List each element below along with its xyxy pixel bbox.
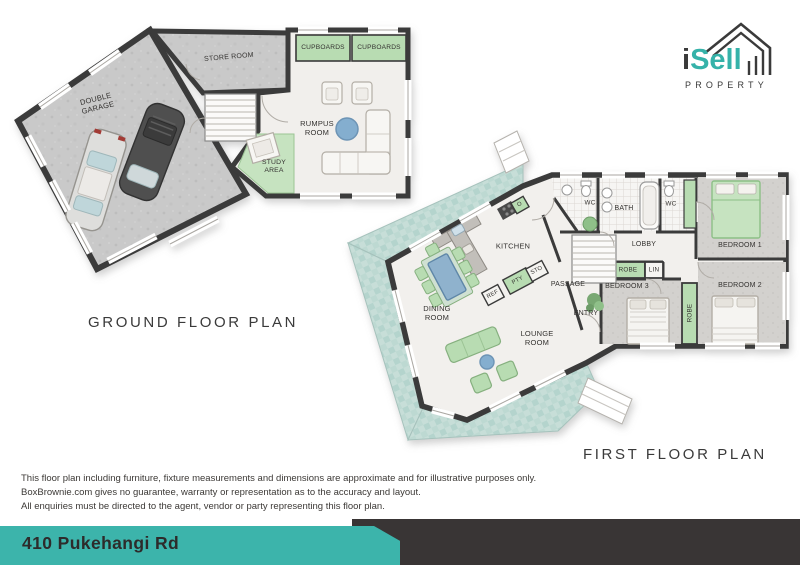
bed-bedroom1 — [712, 181, 760, 238]
flyer-page: DOUBLE GARAGE STORE ROOM CUPBOARDS CUPBO… — [0, 0, 800, 565]
ground-stairs — [205, 94, 256, 141]
label-study-area: STUDY AREA — [256, 159, 292, 175]
disclaimer-line-3: All enquiries must be directed to the ag… — [21, 500, 385, 514]
label-entry: ENTRY — [574, 310, 599, 318]
footer-dark-bar — [352, 519, 800, 565]
label-robe-lobby: ROBE — [619, 266, 638, 273]
toilet-wc-left — [581, 181, 591, 197]
label-bedroom-2: BEDROOM 2 — [718, 282, 762, 290]
label-passage: PASSAGE — [551, 281, 585, 289]
first-floor-title: FIRST FLOOR PLAN — [583, 446, 767, 463]
label-robe-bedroom: ROBE — [686, 304, 693, 323]
isell-logo-wordmark: iSell — [682, 44, 742, 77]
label-wc-left: WC — [585, 199, 596, 206]
disclaimer-line-1: This floor plan including furniture, fix… — [21, 472, 536, 486]
label-dining-room: DINING ROOM — [417, 305, 457, 323]
bed-bedroom3 — [627, 298, 669, 344]
toilet-wc-right — [664, 181, 674, 197]
bath-basin-1 — [602, 188, 612, 198]
isell-logo-subtitle: PROPERTY — [685, 80, 768, 90]
disclaimer-line-2: BoxBrownie.com gives no guarantee, warra… — [21, 486, 421, 500]
label-bath: BATH — [615, 205, 634, 213]
logo-i: i — [682, 44, 690, 76]
label-lobby: LOBBY — [632, 241, 656, 249]
property-address: 410 Pukehangi Rd — [22, 533, 179, 554]
plant-stairs — [583, 217, 597, 231]
deck-steps-top — [494, 131, 529, 173]
label-cupboards-left: CUPBOARDS — [301, 44, 345, 52]
bathtub — [640, 182, 659, 229]
label-lounge-room: LOUNGE ROOM — [515, 330, 559, 348]
label-bedroom-3: BEDROOM 3 — [605, 283, 649, 291]
label-bedroom-1: BEDROOM 1 — [718, 242, 762, 250]
deck-steps-right — [578, 378, 632, 424]
first-stairs — [572, 235, 616, 283]
basin-wc-left — [562, 185, 572, 195]
label-rumpus-room: RUMPUS ROOM — [294, 120, 340, 138]
label-kitchen: KITCHEN — [496, 243, 530, 252]
label-wc-right: WC — [666, 200, 677, 207]
logo-sell: Sell — [690, 44, 742, 76]
label-linen: LIN — [649, 266, 659, 273]
ground-floor-plan — [18, 30, 408, 269]
lounge-table — [480, 355, 494, 369]
ground-floor-title: GROUND FLOOR PLAN — [88, 314, 298, 331]
bath-basin-2 — [602, 202, 612, 212]
label-cupboards-right: CUPBOARDS — [357, 44, 401, 52]
wc-closet-unit — [684, 180, 696, 228]
bed-bedroom2 — [712, 296, 758, 344]
